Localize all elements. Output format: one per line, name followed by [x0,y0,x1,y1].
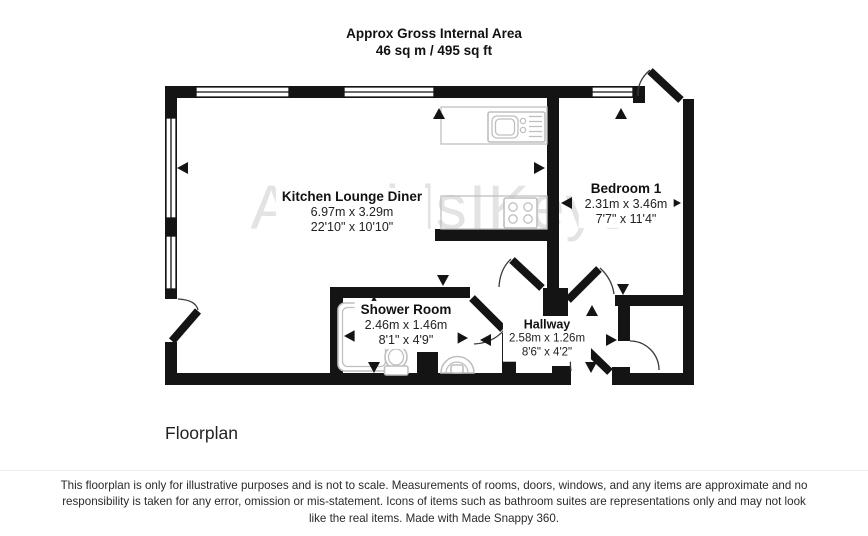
room-name: Hallway [509,318,585,333]
door-icon [499,259,542,288]
room-label-hallway: Hallway 2.58m x 1.26m 8'6" x 4'2" [503,317,591,362]
window-icon [166,236,176,289]
room-imperial-dimensions: 22'10" x 10'10" [282,220,422,235]
hob-icon [504,198,537,228]
room-metric-dimensions: 2.31m x 3.46m [585,197,668,212]
arrow-right-icon [606,334,617,346]
area-title-line2: 46 sq m / 495 sq ft [0,42,868,59]
room-label-bedroom-1: Bedroom 1 2.31m x 3.46m 7'7" x 11'4" [579,180,674,228]
arrow-right-icon [534,162,545,174]
floorplan-caption: Floorplan [165,423,238,444]
floorplan-page: Approx Gross Internal Area 46 sq m / 495… [0,0,868,536]
door-icon [568,268,614,300]
arrow-down-icon [437,275,449,286]
toilet-icon [385,346,409,376]
room-name: Kitchen Lounge Diner [282,189,422,205]
arrow-left-icon [561,197,572,209]
window-icon [196,87,289,97]
arrow-up-icon [586,305,598,316]
room-name: Shower Room [361,302,452,318]
floorplan-drawing [0,0,868,536]
room-name: Bedroom 1 [585,181,668,197]
window-icon [344,87,434,97]
cupboard-door-arc [630,341,659,370]
room-metric-dimensions: 2.58m x 1.26m [509,333,585,347]
room-metric-dimensions: 6.97m x 3.29m [282,205,422,220]
arrow-left-icon [177,162,188,174]
arrow-right-icon [457,332,468,344]
room-metric-dimensions: 2.46m x 1.46m [361,318,452,333]
arrow-left-icon [480,334,491,346]
area-title: Approx Gross Internal Area 46 sq m / 495… [0,25,868,60]
disclaimer-text: This floorplan is only for illustrative … [0,470,868,527]
kitchen-sink-icon [488,112,545,142]
room-label-kitchen-lounge-diner: Kitchen Lounge Diner 6.97m x 3.29m 22'10… [276,188,428,236]
room-imperial-dimensions: 8'1" x 4'9" [361,333,452,348]
room-imperial-dimensions: 8'6" x 4'2" [509,347,585,361]
basin-icon [441,357,474,373]
area-title-line1: Approx Gross Internal Area [0,25,868,42]
window-icon [592,87,633,97]
arrow-up-icon [615,108,627,119]
window-icon [166,118,176,218]
room-label-shower-room: Shower Room 2.46m x 1.46m 8'1" x 4'9" [355,301,458,349]
room-imperial-dimensions: 7'7" x 11'4" [585,212,668,227]
arrow-down-icon [617,284,629,295]
arrow-down-icon [585,362,597,373]
arrow-up-icon [433,108,445,119]
